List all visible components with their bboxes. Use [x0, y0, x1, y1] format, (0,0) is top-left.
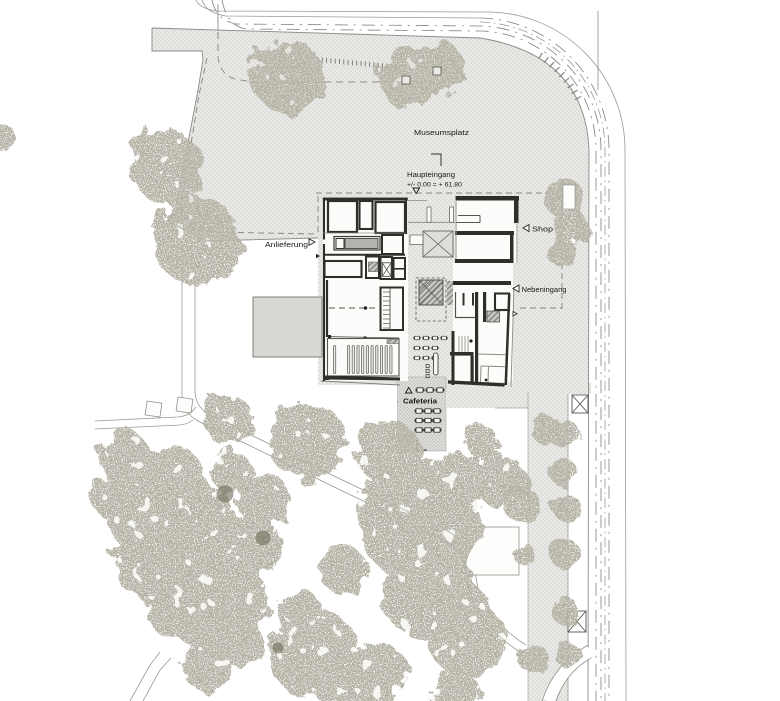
svg-text:+/- 0.00 = + 61.80: +/- 0.00 = + 61.80 [407, 182, 462, 189]
svg-text:Cafeteria: Cafeteria [403, 397, 438, 406]
svg-text:Museumsplatz: Museumsplatz [414, 128, 469, 137]
svg-text:Shop: Shop [532, 225, 553, 234]
svg-text:Anlieferung: Anlieferung [265, 242, 308, 249]
svg-text:Nebeningang: Nebeningang [522, 285, 567, 294]
svg-text:Haupteingang: Haupteingang [407, 172, 455, 179]
svg-text:Brandschutztor: Brandschutztor [456, 282, 481, 286]
